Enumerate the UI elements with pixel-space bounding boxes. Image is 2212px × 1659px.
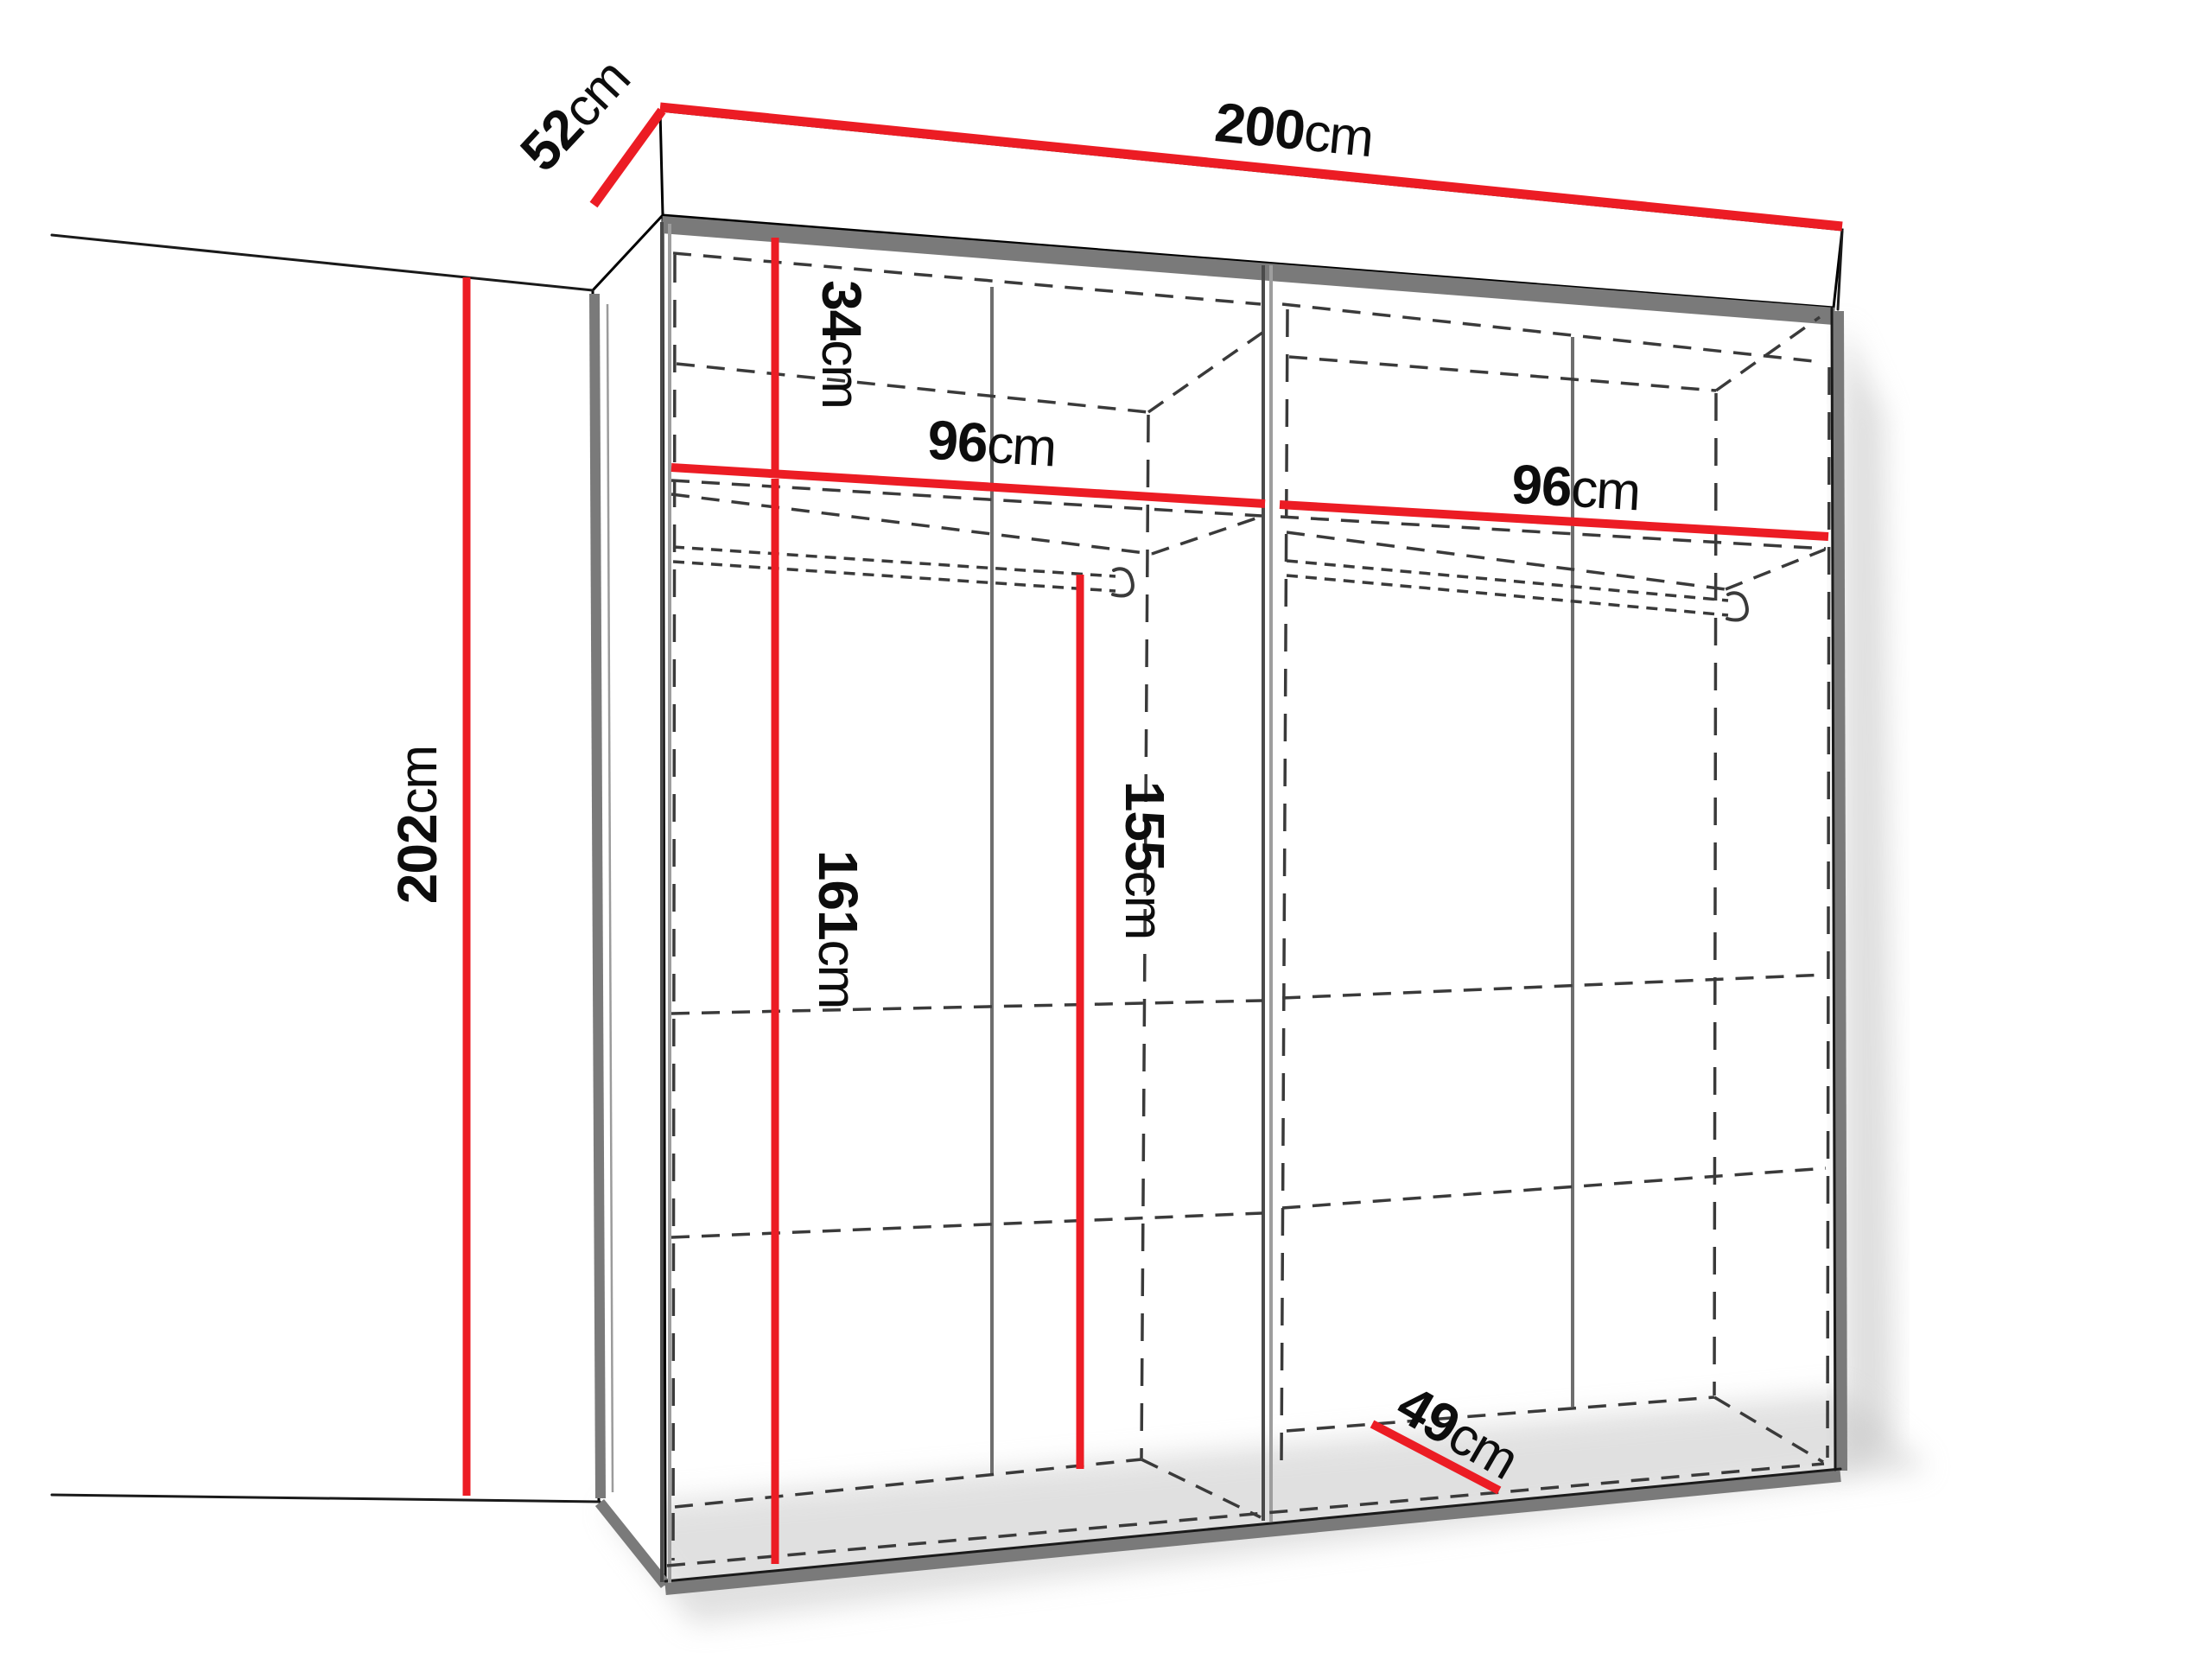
left-rod-top [673,547,1116,576]
label-right-width-96cm: 96cm [1510,453,1641,523]
left-shelf-diagonal [1152,517,1261,554]
right-shadow [1842,321,1894,1472]
wardrobe-dimension-diagram: 200cm 52cm 202cm 34cm 96cm 96cm 161cm 15… [0,0,2212,1659]
right-wall-edge [1838,311,1841,1471]
top-extension-line [52,235,593,290]
right-wall-back-edge [1827,367,1829,1458]
ceiling-diagonal-right [1716,317,1820,391]
right-shelf-diagonal [1726,550,1825,589]
right-rod-hook [1727,593,1747,620]
label-left-width-96cm: 96cm [925,409,1057,479]
label-top-shelf-34cm: 34cm [810,280,873,408]
left-rod-hook [1113,569,1133,595]
bottom-extension-line [52,1495,599,1502]
label-rod-height-155cm: 155cm [1114,781,1176,938]
base-shadow [605,1393,1929,1624]
right-row-2 [1282,1168,1826,1208]
back-left-corner [673,255,675,1560]
left-shelf-back [671,494,1152,554]
label-width-200cm: 200cm [1212,91,1376,168]
divider-back-edge [1281,309,1287,1462]
left-row-2 [671,1213,1262,1237]
side-panel-left-edge [594,294,601,1498]
drop-shadows [605,321,1929,1624]
label-height-202cm: 202cm [386,747,448,904]
carcass [52,111,1842,1588]
left-row-1 [671,1001,1262,1014]
left-rod-bottom [673,562,1116,591]
ceiling-back-right [1289,357,1716,391]
diagram-canvas: 200cm 52cm 202cm 34cm 96cm 96cm 161cm 15… [0,0,2212,1659]
right-row-1 [1282,975,1826,998]
ceiling-diagonal-left [1148,333,1262,412]
ceiling-back-left [677,364,1148,412]
label-lower-height-161cm: 161cm [807,850,869,1007]
